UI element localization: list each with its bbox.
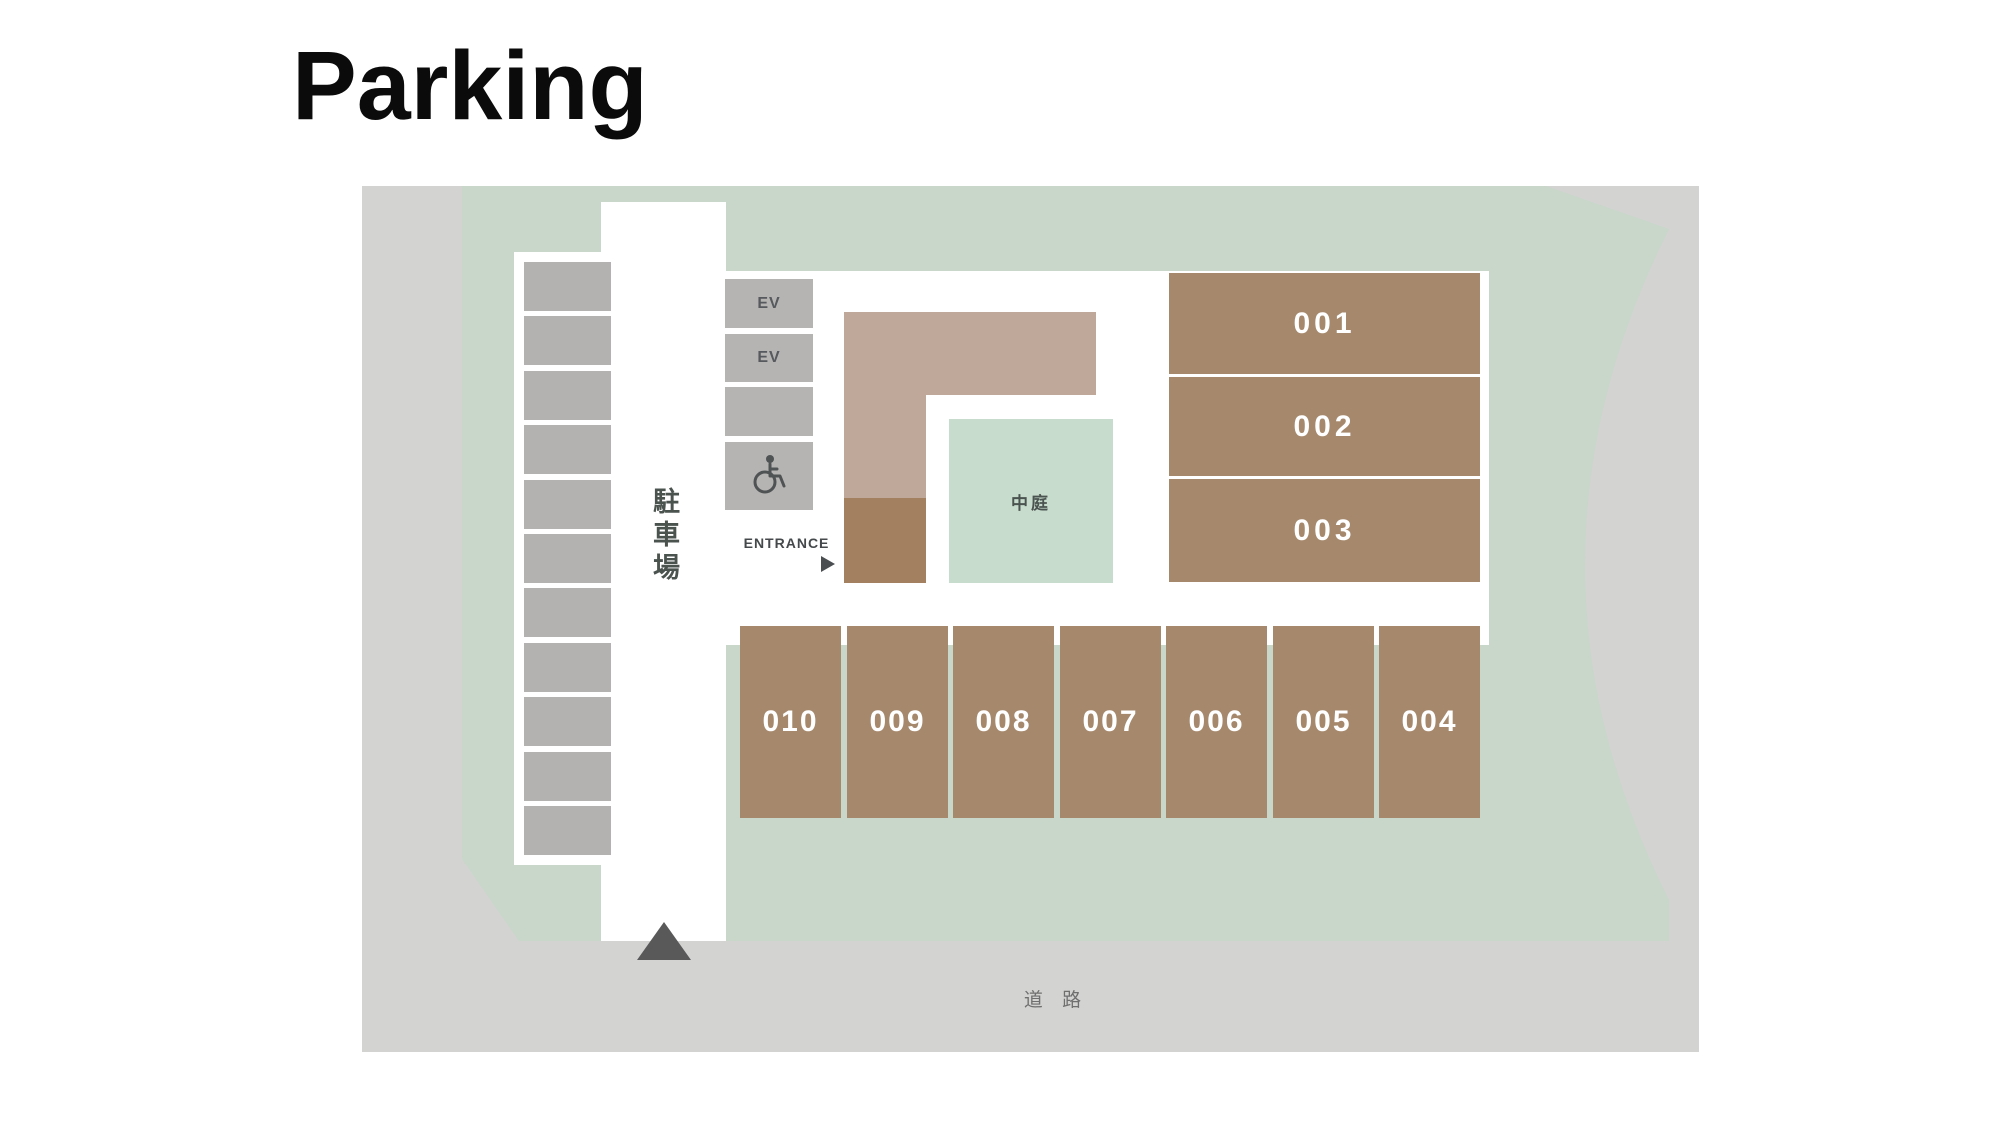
entrance-label: ENTRANCE [739,535,834,551]
parking-space-006: 006 [1166,626,1267,818]
wheelchair-icon [748,453,790,499]
parking-space-010: 010 [740,626,841,818]
space-label: 003 [1293,514,1355,548]
parking-space-005: 005 [1273,626,1374,818]
parking-space-008: 008 [953,626,1054,818]
parking-stall [524,262,611,311]
courtyard-label: 中庭 [1011,489,1051,514]
elevator-label: EV [757,295,780,313]
space-label: 002 [1293,410,1355,444]
parking-stall [524,588,611,637]
parking-stall [524,806,611,855]
courtyard: 中庭 [949,419,1113,583]
space-label: 007 [1082,705,1138,739]
parking-space-007: 007 [1060,626,1161,818]
parking-stall [524,697,611,746]
parking-site-map: 駐車場 EV EV ENTRANCE 中庭 001 002 003 010 [362,186,1699,1052]
elevator-label: EV [757,349,780,367]
parking-stall [524,371,611,420]
parking-space-003: 003 [1169,479,1480,582]
entrance-arrow-icon [821,556,835,572]
parking-stall [524,316,611,365]
elevator-box: EV [725,334,813,382]
entrance-building-block [844,498,926,583]
road-label: 道 路 [956,985,1156,1012]
parking-stall [524,480,611,529]
service-box [725,387,813,436]
parking-space-001: 001 [1169,273,1480,374]
accessible-parking-box [725,442,813,510]
parking-stall [524,752,611,801]
space-label: 009 [869,705,925,739]
space-label: 008 [975,705,1031,739]
parking-lot-label: 駐車場 [645,487,684,586]
space-label: 005 [1295,705,1351,739]
parking-stall [524,643,611,692]
parking-space-004: 004 [1379,626,1480,818]
site-entrance-marker-icon [637,922,691,960]
building-wing-left [844,312,926,498]
parking-space-002: 002 [1169,377,1480,476]
parking-space-009: 009 [847,626,948,818]
space-label: 001 [1293,307,1355,341]
space-label: 006 [1188,705,1244,739]
page-title: Parking [292,30,648,142]
space-label: 010 [762,705,818,739]
space-label: 004 [1401,705,1457,739]
parking-stall [524,534,611,583]
parking-stall [524,425,611,474]
elevator-box: EV [725,279,813,328]
